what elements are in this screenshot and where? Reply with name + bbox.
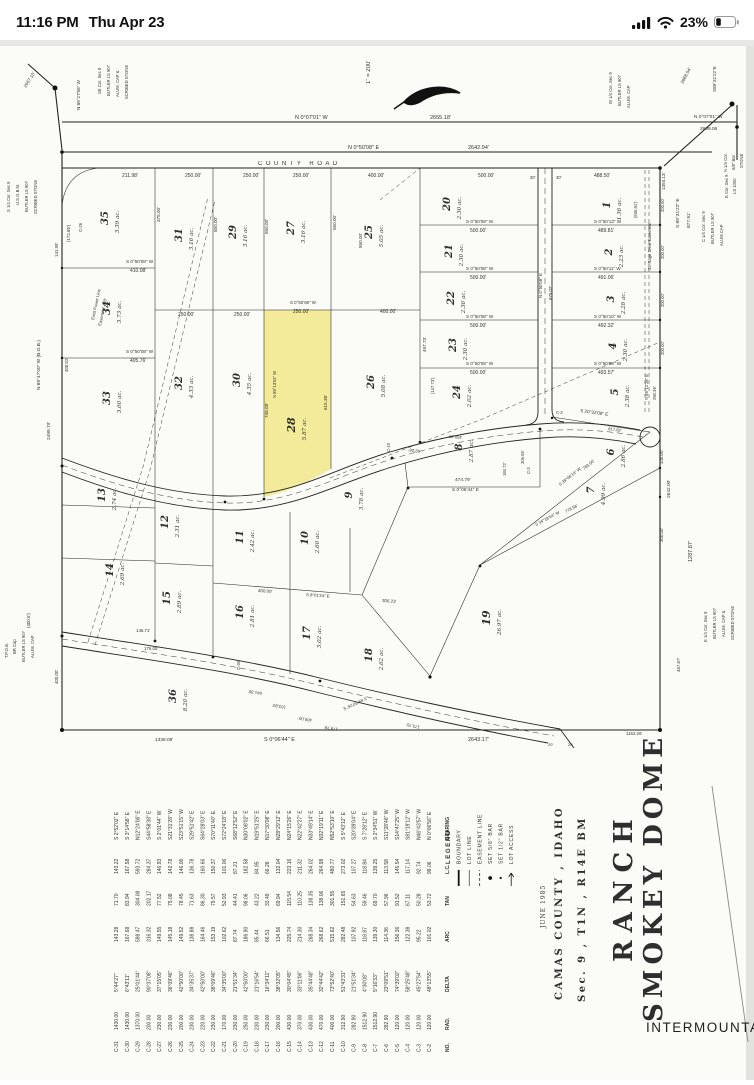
curve-C-16-col2: 38°32'05" [276,970,282,992]
legend-item-1: LOT LINE [467,835,473,864]
map-label-76: 457.87' [676,658,681,672]
map-label-139: C-10 [386,442,391,452]
curve-C-19-col3: 186.90 [244,926,250,942]
paper-edge [746,46,754,1080]
map-labels: N 0°07'01" W2655.18'N 0°50'08" E2642.94'… [4,61,744,747]
map-label-122: 306.23' [382,598,397,604]
curve-C-5-col4: 91.52 [395,893,401,906]
map-label-9: 500.00' [478,173,494,179]
curve-C-22-col0: C-22 [211,1041,217,1052]
curve-C-30-col1: 1430.00 [125,1012,131,1030]
lot-7-acres: 4.99 ac. [601,483,607,507]
curve-C-21-col2: 34°35'00" [222,970,228,992]
curve-C-3-col5: 92.74 [416,861,422,874]
map-label-138: C-26 [78,222,83,232]
map-label-97: N 89°47'00" W (B.O.B.) [36,340,42,390]
map-label-52: 200.00' [660,293,665,307]
lot-24-number: 24 [452,385,463,400]
map-label-78: 290.39' [652,386,657,400]
map-label-65: S89°31'22"E [712,66,717,92]
curve-C-11-col0: C-11 [330,1041,336,1052]
lot-3-number: 3 [606,295,617,302]
monument-dot-25 [407,487,410,490]
curve-table: NO.RAD.DELTAARCTANL.C.BEARINGC-2120.0048… [114,809,451,1052]
map-label-20: 250.00' [293,309,309,315]
curve-C-17-col6: N17°30'08" E [265,810,271,840]
monument-dot-14 [61,635,64,638]
map-label-18: 250.00' [234,312,250,318]
curve-table-header-2: DELTA [445,976,451,992]
map-label-55: (606.91') [633,201,638,218]
lot-24-acres: 2.02 ac. [467,385,473,409]
curve-C-22-col1: 230.00 [211,1014,217,1030]
curve-C-6-col2: 23°09'51" [384,970,390,992]
map-label-135: 173.75' [406,722,421,730]
curve-C-13-col0: C-13 [308,1041,314,1052]
status-bar: 11:16 PM Thu Apr 23 23% [0,0,754,40]
curve-C-31-col5: 143.22 [114,858,120,874]
curve-C-5-col2: 74°39'02" [395,970,401,992]
lot-8-acres: 2.87 ac. [469,440,475,464]
lot-7-number: 7 [586,486,597,493]
map-label-21: 400.00' [380,309,396,315]
curve-C-7-col4: 69.70 [373,893,379,906]
curve-C-6-col0: C-6 [384,1044,390,1052]
curve-C-7-col5: 139.25 [373,858,379,874]
map-label-124: 783.60' [582,458,596,470]
map-label-96: 400.02' [64,358,69,372]
lot-6-number: 6 [606,448,617,455]
curve-C-18-col3: 85.44 [254,929,260,942]
map-label-27: 748.08' [264,403,269,418]
curve-C-6-col4: 57.96 [384,893,390,906]
curve-C-27-col1: 230.00 [157,1014,163,1030]
lot-27-acres: 3.16 ac. [301,221,307,244]
map-label-101: (300.6') [26,613,31,628]
map-label-61: E Cor. Sec 9 [724,174,729,198]
map-label-2: N 0°50'08" E [348,145,380,151]
lot-12-number: 12 [160,515,171,529]
curve-C-12-col4: 138.06 [319,890,325,906]
curve-C-12-col6: N32°19'11" E [319,810,325,840]
curve-C-31-col3: 143.28 [114,926,120,942]
curve-C-19-col4: 98.06 [244,893,250,906]
lot-21-number: 21 [444,244,455,259]
cellular-signal-icon [632,16,651,29]
map-label-95: (172.85') [66,224,71,242]
lot-16-number: 16 [235,605,246,619]
lot-35-acres: 3.39 ac. [115,211,121,234]
curve-C-28-col0: C-28 [146,1041,152,1052]
lot-34-acres: 3.73 ac. [117,301,123,324]
curve-C-15-col4: 115.54 [287,891,293,906]
curve-C-11-col1: 400.00 [330,1014,336,1030]
lot-33-acres: 3.60 ac. [117,391,123,414]
lot-32-acres: 4.33 ac. [189,376,195,400]
curve-C-10-col0: C-10 [341,1041,347,1052]
curve-C-10-col5: 273.02 [341,858,347,874]
curve-C-22-col2: 38°09'46" [211,970,217,992]
monument-dot-20 [263,498,266,501]
curve-table-header-3: ARC [445,931,451,942]
curve-C-29-col4: 304.08 [136,890,142,906]
battery-percent: 23% [680,14,708,30]
map-label-6: 250.00' [243,173,259,179]
map-label-44: 492.32' [598,323,614,329]
curve-C-2-col1: 120.00 [427,1014,433,1030]
curve-C-3-col4: 50.28 [416,893,422,906]
curve-C-13-col2: 35°44'48" [308,970,314,992]
curve-C-24-col5: 136.78 [190,858,196,874]
curve-C-31-col6: S 2°52'02" E [114,811,120,840]
monument-dot-8 [61,357,63,359]
curve-C-12-col2: 32°44'42" [319,970,325,992]
curve-C-24-col6: S29°51'42" E [190,810,196,840]
lot-33-number: 33 [102,391,113,405]
lot-8-number: 8 [454,443,465,450]
lot-1-number: 1 [602,202,613,209]
curve-C-18-col4: 43.22 [254,893,260,906]
map-label-98: 2499.70' [46,422,52,440]
curve-C-26-col3: 145.18 [168,926,174,942]
status-time: 11:16 PM [16,14,79,31]
monument-dot-18 [319,680,322,683]
map-label-45: S 0°50'08" W [594,361,622,366]
monument-dot-7 [61,267,63,269]
curve-C-21-col0: C-21 [222,1041,228,1052]
curve-C-3-col0: C-3 [416,1044,422,1052]
map-label-32: 500.00' [470,228,486,234]
curve-C-30-col4: 83.94 [125,893,131,906]
curve-C-23-col0: C-23 [200,1041,206,1052]
map-label-72: STONE [739,153,744,168]
curve-C-14-col1: 370.00 [298,1014,304,1030]
monument-dot-9 [659,224,661,226]
map-label-4: 211.98' [122,173,138,179]
map-label-137: 92.06' [408,447,420,454]
lot-15-number: 15 [162,591,173,605]
monument-dot-26 [659,467,661,469]
curve-C-8-col6: S 7°28'12" E [362,811,368,840]
curve-C-24-col4: 71.63 [190,893,196,906]
map-label-105: ALUM. CAP [30,635,35,658]
monument-dot-27 [659,496,661,498]
curve-C-16-col4: 69.94 [276,893,282,906]
curve-C-9-col6: S20°39'04" E [352,810,358,840]
map-label-129: 300.00' [659,528,664,542]
curve-C-23-col2: 42°50'00" [200,970,206,992]
map-label-110: S 0°06'44" E [264,737,295,743]
map-label-109: 1339.09' [155,737,173,743]
map-label-57: 877.91' [686,212,692,228]
map-label-56: S 89°31'22" E [675,198,681,228]
curve-C-24-col3: 138.88 [190,926,196,942]
curve-C-27-col2: 37°15'05" [157,970,163,992]
curve-C-20-col0: C-20 [233,1041,239,1052]
map-label-7: 250.00' [293,173,309,179]
title-border-line [712,786,748,1042]
map-label-15: S 0°50'08" W [126,349,154,354]
curve-C-16-col0: C-16 [276,1041,282,1052]
curve-C-11-col4: 301.55 [330,890,336,906]
map-label-47: S 20°32'09" E [580,408,609,417]
curve-C-11-col2: 73°52'40" [330,970,336,992]
map-label-59: BUTLER LS 907 [710,212,715,244]
curve-C-19-col5: 182.58 [244,858,250,874]
monument-dot-22 [212,656,215,659]
lot-4-acres: 2.30 ac. [623,339,629,363]
monument-dot-24 [479,565,482,568]
map-label-28: N 89°13'54" W [272,371,277,398]
legend-sym-bar12 [500,877,502,879]
map-label-108: 176.05' [144,646,158,651]
curve-C-11-col6: N52°53'10" E [330,810,336,840]
lot-32-number: 32 [174,376,185,390]
map-label-12: 488.50' [594,173,610,179]
map-label-37: S 0°50'08" W [466,361,494,366]
curve-C-12-col0: C-12 [319,1041,325,1052]
curve-C-6-col6: S11°28'46" W [384,809,390,840]
map-label-1: 2655.18' [430,115,451,121]
map-label-22: 375.00' [156,207,161,222]
curve-C-31-col2: 5°44'27" [114,973,120,992]
lot-2-acres: 2.23 ac. [619,245,625,269]
map-label-10: 30' [530,175,536,180]
curve-C-7-col6: S 2°34'51" W [373,810,379,840]
curve-C-9-col0: C-9 [352,1044,358,1052]
curve-C-5-col1: 120.00 [395,1014,401,1030]
map-label-24: 550.00' [264,219,269,234]
curve-C-17-col3: 66.51 [265,929,271,942]
map-label-131: 103.80' [272,703,286,710]
curve-C-3-col3: 95.22 [416,929,422,942]
curve-C-12-col5: 264.98 [319,858,325,874]
curve-C-4-col6: S81°19'12" W [406,809,412,840]
curve-C-23-col3: 164.46 [200,926,206,942]
legend-sym-access [509,873,514,886]
lot-23-number: 23 [448,338,459,353]
curve-table-header-4: TAN [445,896,451,906]
curve-C-2-col2: 48°13'55" [427,970,433,992]
curve-C-14-col5: 211.32 [298,859,304,874]
curve-C-8-col1: 1512.90 [362,1012,368,1030]
lot-35-number: 35 [100,211,111,225]
highlighted-lot-28 [264,310,331,497]
curve-C-22-col6: S70°11'40" E [211,810,217,840]
curve-table-header-1: RAD. [445,1017,451,1030]
curve-C-26-col4: 75.08 [168,893,174,906]
map-label-36: 500.00' [470,323,486,329]
curve-C-13-col6: N33°49'14" E [308,810,314,840]
curve-C-20-col3: 87.74 [233,929,239,942]
map-label-62: LS 1000 [732,178,737,194]
lot-31-number: 31 [174,228,185,242]
title-line-2: Sec. 9 , T1N , R14E BM [577,816,588,1002]
lot-20-acres: 2.30 ac. [457,197,463,221]
map-label-142: C-30 [236,660,241,670]
curve-C-22-col3: 153.19 [211,926,217,942]
map-label-79: E 1/4 Cor. Sec 9 [703,611,708,642]
map-label-66: 2668.54' [679,67,692,85]
curve-C-30-col3: 167.68 [125,926,131,942]
map-label-54: 25' Sage Drive Easement [647,222,652,270]
curve-C-4-col0: C-4 [406,1044,412,1052]
map-label-85: BUTLER LS 907 [106,64,111,96]
curve-C-10-col6: S 5°43'12" E [341,811,347,840]
title-block: SMOKEY DOMERANCHSec. 9 , T1N , R14E BMCA… [540,733,669,1022]
battery-icon [714,16,740,29]
lot-36-number: 36 [168,689,179,703]
curve-C-8-col0: C-8 [362,1044,368,1052]
map-label-88: N 89°27'56" W [76,79,81,110]
map-label-16: 405.76' [130,358,146,364]
map-label-121: S 8°01'24" E [306,592,330,599]
map-label-69: ALUM. CAP [626,85,631,108]
lot-4-number: 4 [608,342,619,349]
curve-table-header-0: NO. [445,1043,451,1053]
map-label-133: 179.79' [324,725,338,732]
map-label-117: 306.55' [520,450,525,464]
curve-C-3-col6: N46°43'57" W [416,809,422,840]
map-label-26: 550.00' [358,233,363,248]
curve-C-21-col5: 101.06 [222,858,228,874]
lot-3-acres: 2.28 ac. [621,292,627,316]
curve-C-13-col5: 264.02 [308,858,314,874]
map-label-89: 2667.10' [23,71,37,89]
map-label-68: BUTLER LS 907 [617,74,622,106]
curve-C-23-col1: 220.00 [200,1014,206,1030]
curve-C-17-col5: 66.28 [265,861,271,874]
map-label-114: 20' [568,742,573,747]
curve-C-7-col2: 5°16'33" [373,973,379,992]
curve-C-31-col4: 71.70 [114,893,120,906]
curve-C-25-col1: 200.00 [179,1014,185,1030]
map-label-92: U.S.G.B.M. [15,184,20,205]
monument-dot-16 [391,457,394,460]
monument-dot-3 [60,150,64,154]
legend-item-2: EASEMENT LINE [478,814,484,864]
curve-C-26-col6: S21°31'28" W [168,809,174,840]
curve-C-24-col0: C-24 [190,1041,196,1052]
curve-C-28-col5: 284.37 [146,858,152,874]
status-date: Thu Apr 23 [89,14,165,31]
curve-C-10-col2: 51°43'31" [341,970,347,992]
map-label-90: 141.99' [54,243,59,257]
map-label-31: S 0°50'08" W [466,219,494,224]
curve-table-header-5: L.C. [445,864,451,874]
map-label-70: N 1/4 Cor. [723,153,728,172]
curve-C-28-col6: S44°58'38" E [146,810,152,840]
map-label-93: BUTLER LS 907 [24,180,29,212]
lot-11-acres: 2.42 ac. [250,530,256,554]
map-label-64: 2639.06 [700,126,718,132]
curve-C-30-col0: C-30 [125,1041,131,1052]
lot-34-number: 34 [102,301,113,315]
map-label-0: N 0°07'01" W [295,115,329,121]
map-label-41: S 0°50'11" W [594,266,621,271]
map-label-91: S 1/4 Cor. Sec 9 [6,181,11,212]
monument-dot-23 [428,675,431,678]
curve-C-21-col6: S72°24'18" E [222,810,228,840]
curve-C-29-col1: 1370.00 [136,1012,142,1030]
curve-C-19-col0: C-19 [244,1041,250,1052]
curve-C-5-col3: 156.36 [395,926,401,942]
curve-C-24-col2: 34°35'37" [190,970,196,992]
lot-19-acres: 26.97 ac. [497,609,503,636]
curve-C-9-col2: 21°51'34" [352,970,358,992]
lot-12-acres: 2.31 ac. [175,515,181,539]
map-label-25: 550.00' [332,215,337,230]
map-label-3: 2642.94' [468,145,489,151]
curve-C-20-col2: 21°51'34" [233,970,239,992]
curve-C-18-col6: N19°51'25" E [254,810,260,840]
curve-C-8-col2: 4°30'08" [362,973,368,992]
curve-C-29-col3: 598.47 [136,926,142,942]
curve-C-14-col2: 33°11'06" [298,971,304,992]
lot-1-acres: 1.36 ac. [617,198,623,221]
curve-C-30-col6: S 3°14'58" E [125,811,131,840]
curve-C-10-col3: 282.48 [341,926,347,942]
lot-17-acres: 3.02 ac. [317,626,323,649]
map-label-84: SE Cor. Sec 8 [97,67,102,94]
curve-C-25-col4: 78.45 [179,893,185,906]
curve-C-10-col1: 312.90 [341,1014,347,1030]
legend-title: LEGEND [445,829,452,864]
legend: LEGENDBOUNDARYLOT LINEEASEMENT LINESET 5… [445,814,515,886]
plat-map-svg: N 0°07'01" W2655.18'N 0°50'08" E2642.94'… [0,46,754,1080]
map-label-34: 500.00' [470,275,486,281]
curve-C-30-col2: 6°43'11" [125,974,131,992]
title-line-0: SMOKEY DOME [639,733,669,1022]
map-label-63: N 0°07'01" W [694,114,723,120]
legend-item-5: LOT ACCESS [509,825,515,864]
map-label-74: 2642.00' [666,480,672,498]
map-label-83: 1" = 200' [366,61,372,84]
curve-C-11-col5: 480.77 [330,858,336,874]
map-label-38: 500.00' [470,370,486,376]
lot-28-number: 28 [285,417,298,434]
map-label-82: SCRIBED STONE [730,606,735,640]
curve-C-13-col4: 138.35 [308,890,314,906]
map-label-140: C-3 [526,467,531,474]
curve-C-21-col1: 170.00 [222,1014,228,1030]
lot-13-number: 13 [97,488,108,502]
map-label-11: 30' [556,175,562,180]
lot-14-acres: 2.69 ac. [120,563,126,587]
curve-C-8-col5: 118.84 [362,859,368,874]
curve-C-2-col4: 53.72 [427,893,433,906]
curve-C-28-col2: 90°37'08" [146,970,152,992]
map-label-87: SCRIBED STONE [124,65,129,99]
title-line-3: CAMAS COUNTY , IDAHO [554,806,565,1000]
lot-labels: 353.39 ac.313.16 ac.293.16 ac.273.16 ac.… [97,197,631,712]
curve-C-31-col1: 1430.00 [114,1012,120,1030]
map-label-19: S 0°50'08" W [290,300,317,305]
curve-C-17-col0: C-17 [265,1041,271,1052]
curve-C-20-col4: 44.41 [233,893,239,906]
map-label-23: 550.00' [213,217,218,232]
curve-C-17-col1: 230.00 [265,1014,271,1030]
curve-C-19-col2: 42°50'00" [244,970,250,992]
curve-C-18-col5: 84.95 [254,861,260,874]
curve-C-4-col5: 117.14 [406,859,412,874]
map-label-14: 410.08' [130,268,146,274]
curve-C-11-col3: 515.62 [330,926,336,942]
curve-C-14-col3: 214.30 [298,926,304,942]
map-label-51: 200.00' [660,245,665,259]
map-label-111: 2643.17' [468,737,489,743]
curve-C-25-col3: 149.52 [179,926,185,942]
